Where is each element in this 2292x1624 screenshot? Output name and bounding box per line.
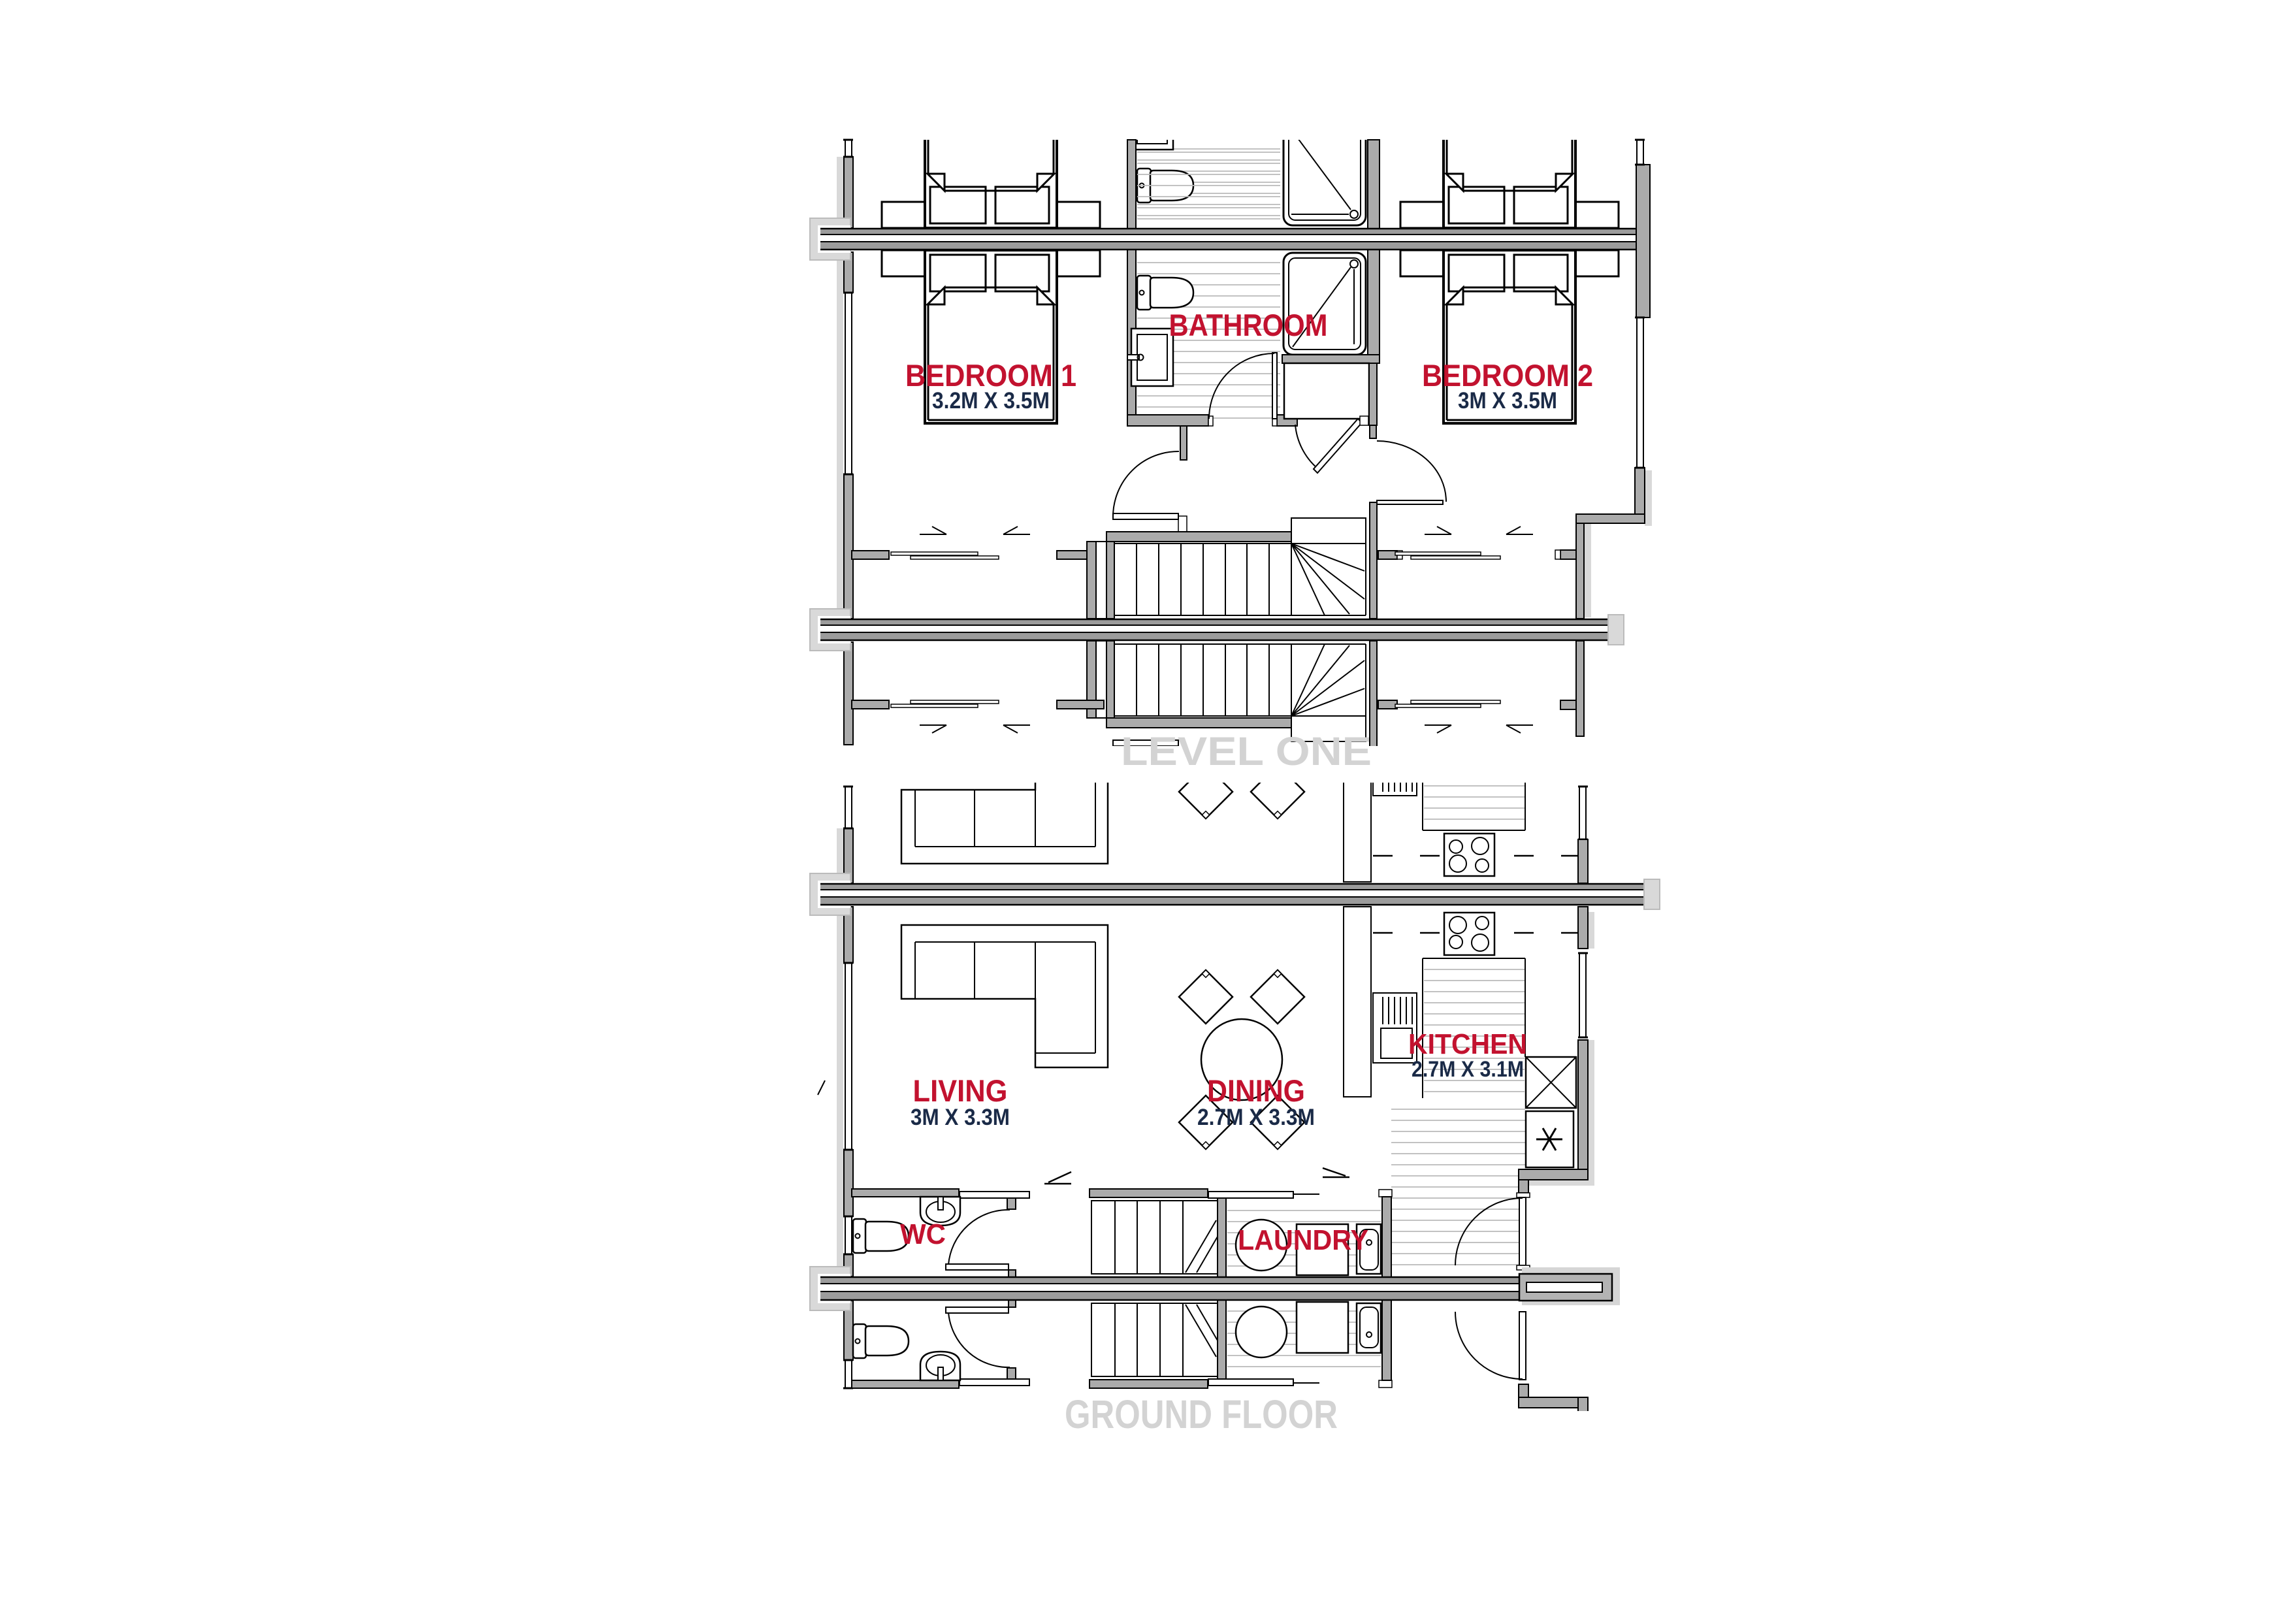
svg-text:3M X 3.5M: 3M X 3.5M — [1458, 388, 1557, 414]
svg-text:LEVEL ONE: LEVEL ONE — [1121, 729, 1372, 773]
svg-text:LAUNDRY: LAUNDRY — [1238, 1224, 1368, 1256]
svg-text:3.2M X 3.5M: 3.2M X 3.5M — [932, 388, 1050, 414]
svg-text:3M X 3.3M: 3M X 3.3M — [911, 1105, 1010, 1130]
svg-text:BATHROOM: BATHROOM — [1169, 308, 1328, 342]
svg-text:2.7M X 3.1M: 2.7M X 3.1M — [1412, 1057, 1524, 1082]
svg-text:DINING: DINING — [1207, 1073, 1305, 1108]
svg-text:2.7M X 3.3M: 2.7M X 3.3M — [1197, 1105, 1315, 1130]
svg-text:KITCHEN: KITCHEN — [1408, 1028, 1527, 1060]
svg-text:LIVING: LIVING — [913, 1073, 1008, 1108]
svg-text:GROUND FLOOR: GROUND FLOOR — [1065, 1392, 1338, 1437]
svg-text:WC: WC — [900, 1218, 946, 1250]
